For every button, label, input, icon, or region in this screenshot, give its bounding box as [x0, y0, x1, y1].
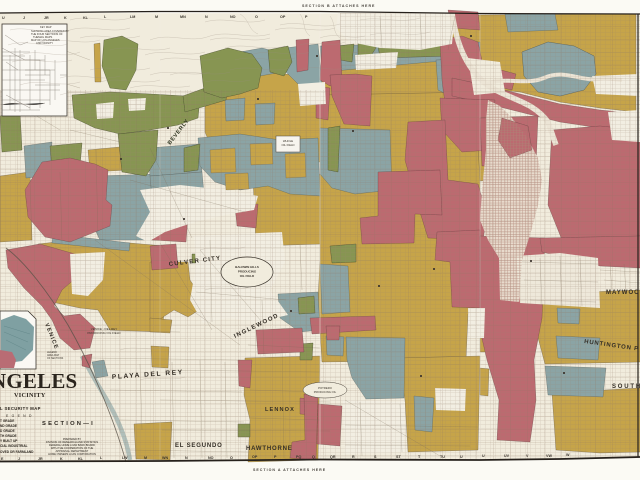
- svg-text:K: K: [60, 457, 63, 461]
- svg-text:MN: MN: [180, 15, 186, 19]
- svg-text:UV: UV: [504, 454, 510, 458]
- svg-text:KEY MAP: KEY MAP: [40, 25, 52, 29]
- svg-text:OIL FIELD: OIL FIELD: [281, 143, 294, 147]
- svg-text:N: N: [205, 15, 208, 19]
- svg-text:O: O: [230, 456, 233, 460]
- svg-text:ND GRADE: ND GRADE: [0, 424, 17, 428]
- svg-text:OIL FIELD: OIL FIELD: [240, 274, 255, 278]
- svg-text:JR: JR: [44, 16, 49, 20]
- svg-text:PRODUCING OIL: PRODUCING OIL: [314, 390, 337, 394]
- svg-text:PQ: PQ: [296, 455, 301, 459]
- svg-text:TH GRADE: TH GRADE: [0, 434, 17, 438]
- svg-text:LM: LM: [130, 15, 135, 19]
- svg-text:OP: OP: [280, 15, 286, 19]
- svg-text:PRODUCING: PRODUCING: [238, 270, 257, 274]
- svg-text:PRODUCING OIL FIELD: PRODUCING OIL FIELD: [87, 331, 121, 335]
- svg-text:OP: OP: [252, 455, 258, 459]
- svg-text:R: R: [352, 455, 355, 459]
- svg-text:ST: ST: [396, 455, 401, 459]
- svg-text:JR: JR: [38, 457, 43, 461]
- svg-text:BALDWIN HILLS: BALDWIN HILLS: [235, 265, 259, 269]
- svg-text:OF SECTIONS: OF SECTIONS: [47, 357, 64, 360]
- svg-text:J: J: [18, 457, 20, 461]
- svg-text:M: M: [144, 456, 147, 460]
- svg-text:CIAL INDUSTRIAL: CIAL INDUSTRIAL: [0, 444, 28, 448]
- svg-text:NO: NO: [208, 456, 214, 460]
- svg-text:T GRADE: T GRADE: [0, 419, 14, 423]
- svg-text:NGELES: NGELES: [0, 369, 77, 393]
- svg-text:D GRADE: D GRADE: [0, 429, 15, 433]
- svg-text:NO: NO: [230, 15, 236, 19]
- svg-text:HOME OWNERS LOAN CORPORATION: HOME OWNERS LOAN CORPORATION: [48, 452, 96, 456]
- svg-text:HAWTHORNE: HAWTHORNE: [246, 446, 293, 452]
- svg-text:O: O: [255, 15, 258, 19]
- svg-text:E G E N D: E G E N D: [6, 414, 33, 418]
- svg-text:SECTION—I: SECTION—I: [42, 421, 95, 427]
- svg-text:LENNOX: LENNOX: [265, 407, 295, 413]
- svg-text:OVED OR FARMLAND: OVED OR FARMLAND: [0, 450, 34, 454]
- svg-text:U: U: [482, 454, 485, 458]
- svg-text:LW: LW: [122, 456, 128, 460]
- svg-text:Y BUILT UP: Y BUILT UP: [0, 439, 18, 443]
- svg-text:M: M: [155, 15, 158, 19]
- svg-text:U: U: [460, 455, 463, 459]
- svg-text:VW: VW: [546, 454, 552, 458]
- svg-text:K: K: [64, 16, 67, 20]
- svg-text:U: U: [2, 16, 5, 20]
- svg-text:WN: WN: [162, 456, 168, 460]
- svg-text:SECTION B ATTACHES HERE: SECTION B ATTACHES HERE: [302, 4, 375, 8]
- svg-text:L SECURITY MAP: L SECURITY MAP: [0, 406, 41, 411]
- svg-text:MAYWOOD: MAYWOOD: [606, 290, 640, 296]
- svg-text:W: W: [566, 453, 570, 457]
- svg-text:N: N: [185, 456, 188, 460]
- svg-text:EL SEGUNDO: EL SEGUNDO: [175, 443, 223, 449]
- svg-text:J: J: [23, 16, 25, 20]
- svg-text:Q: Q: [312, 455, 315, 459]
- svg-text:VICINITY: VICINITY: [14, 392, 46, 399]
- svg-text:SOUTH: SOUTH: [612, 384, 640, 390]
- svg-text:QR: QR: [330, 455, 336, 459]
- svg-text:KL: KL: [78, 457, 84, 461]
- svg-text:SECTION A ATTACHES HERE: SECTION A ATTACHES HERE: [253, 468, 326, 472]
- svg-text:TU: TU: [440, 455, 445, 459]
